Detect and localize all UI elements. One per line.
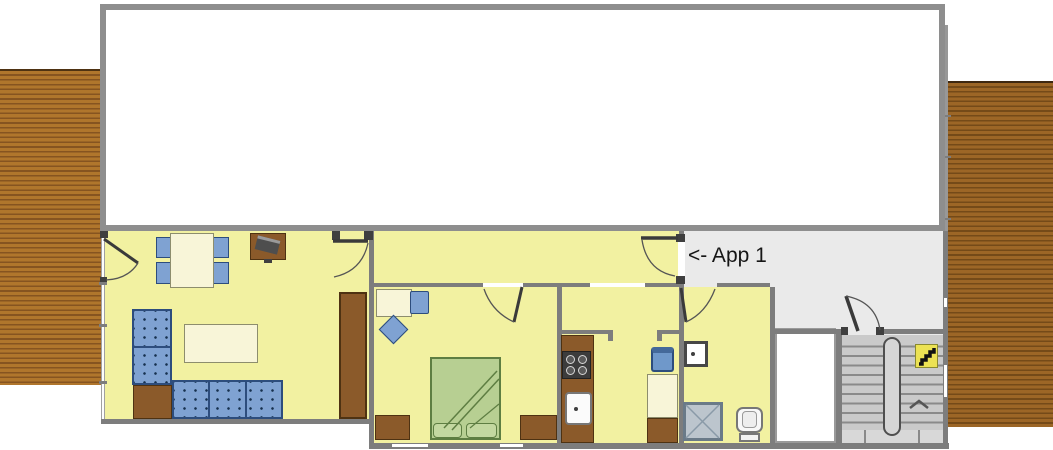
desk-chair [410, 291, 429, 314]
window-opening [392, 444, 428, 447]
kitchen-stub-wall [557, 330, 613, 334]
apartment-label: <- App 1 [688, 244, 767, 268]
living-bottom-wall [101, 419, 374, 424]
dining-chair [156, 237, 171, 258]
burner-icon [578, 355, 587, 364]
window-tick [99, 381, 107, 384]
sofa-divider [134, 346, 170, 348]
kitchen-stub-post [608, 330, 613, 341]
stairs-icon [915, 344, 938, 368]
stair-tread-line [918, 430, 920, 443]
nightstand [375, 415, 410, 440]
door-jamb [876, 327, 884, 335]
window-tick [99, 324, 107, 327]
hallway-floor [374, 231, 679, 283]
utility-cabinet [647, 374, 678, 418]
dining-chair [156, 262, 171, 284]
sofa-divider [208, 382, 210, 417]
dining-table [170, 233, 214, 288]
living-right-wall [369, 231, 374, 443]
washbasin [684, 341, 708, 367]
side-table [133, 385, 172, 419]
window-opening [944, 298, 947, 307]
shower [683, 402, 723, 441]
stairwell-left-wall [836, 330, 842, 449]
door-jamb [841, 327, 848, 335]
kitchen-sink [565, 392, 592, 425]
burner-icon [578, 366, 587, 375]
burner-icon [566, 366, 575, 375]
basin-drain-dot [691, 352, 695, 356]
floor-plan: <- App 1 [0, 0, 1053, 450]
exterior-wall-right [945, 25, 948, 232]
stairwell-right-wall [943, 231, 948, 449]
utility-cabinet-low [647, 418, 678, 443]
washing-machine [651, 347, 674, 372]
door-jamb [364, 231, 373, 240]
door-jamb [332, 231, 340, 240]
utility-stub-post [657, 330, 662, 341]
stairwell-top-wall [770, 329, 845, 334]
sofa-horizontal [172, 380, 283, 419]
pillow [433, 423, 462, 438]
toilet-base [739, 433, 760, 442]
tv-stub [264, 259, 272, 263]
bathroom-top-wall [717, 283, 770, 287]
burner-icon [566, 355, 575, 364]
toilet-seat [742, 411, 757, 428]
stove [562, 351, 591, 379]
window-tick [99, 282, 107, 285]
hall-bottom-wall [374, 283, 483, 287]
wardrobe [339, 292, 367, 419]
stair-tread-line [864, 430, 866, 443]
south-wall [369, 443, 949, 449]
coffee-table [184, 324, 258, 363]
bathroom-right-wall [770, 287, 775, 443]
pillow [466, 423, 497, 438]
faucet-dot [574, 407, 578, 411]
living-left-wall [101, 232, 105, 424]
terrace-deck-left [0, 69, 101, 385]
desk [376, 289, 412, 317]
stairwell-top-wall [882, 329, 945, 334]
dining-chair [213, 237, 229, 258]
sofa-divider [245, 382, 247, 417]
window-opening [944, 365, 947, 397]
stair-railing [883, 337, 901, 436]
door-jamb [676, 276, 685, 284]
door-jamb [676, 234, 685, 242]
dining-chair [213, 262, 229, 284]
window-opening [500, 444, 523, 447]
terrace-deck-right [948, 81, 1053, 427]
upper-floor-overlay [100, 4, 945, 231]
nightstand [520, 415, 557, 440]
door-jamb [100, 231, 108, 238]
shaft-room [775, 328, 836, 443]
entry-door-opening [678, 242, 685, 277]
